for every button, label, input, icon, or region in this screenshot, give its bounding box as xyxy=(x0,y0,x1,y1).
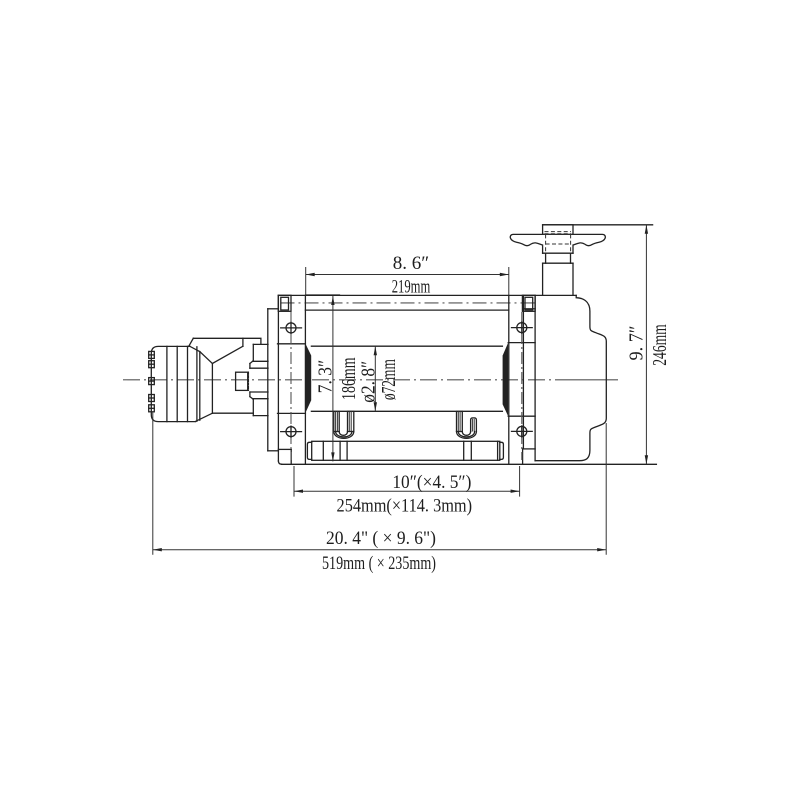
svg-text:ø72mm: ø72mm xyxy=(378,359,400,400)
svg-text:246mm: 246mm xyxy=(649,324,671,366)
svg-text:519mm ( × 235mm): 519mm ( × 235mm) xyxy=(322,553,436,574)
svg-text:20. 4" ( × 9. 6"): 20. 4" ( × 9. 6") xyxy=(326,528,436,549)
svg-text:254mm(×114. 3mm): 254mm(×114. 3mm) xyxy=(337,496,473,517)
svg-text:7. 3″: 7. 3″ xyxy=(315,360,337,394)
svg-text:10″(×4. 5″): 10″(×4. 5″) xyxy=(392,472,471,493)
svg-text:219mm: 219mm xyxy=(392,277,431,298)
svg-text:8. 6″: 8. 6″ xyxy=(393,253,430,274)
svg-text:9. 7″: 9. 7″ xyxy=(625,326,647,361)
svg-text:ø2. 8″: ø2. 8″ xyxy=(358,361,380,403)
